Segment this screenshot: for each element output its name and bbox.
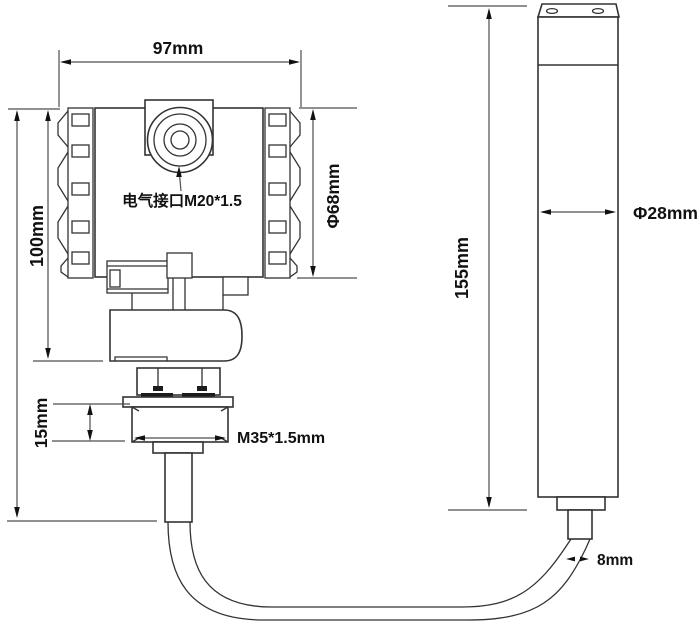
thread-nut xyxy=(132,407,228,442)
probe-top-face xyxy=(538,4,619,17)
dim-housing-diameter: Φ68mm xyxy=(297,108,357,278)
probe-cable-connector xyxy=(568,510,592,539)
flange-plate xyxy=(123,397,233,407)
thread-height-label: 15mm xyxy=(31,398,51,449)
probe-body xyxy=(538,17,618,497)
housing-width-label: 97mm xyxy=(153,38,204,58)
process-connection xyxy=(123,368,233,522)
thread-spec-label: M35*1.5mm xyxy=(237,430,325,447)
oval-boss xyxy=(110,310,242,361)
side-block xyxy=(223,277,248,295)
cable-diameter-label: 8mm xyxy=(597,552,633,569)
lower-plate xyxy=(153,442,203,453)
dim-probe-length: 155mm xyxy=(448,6,527,510)
flange-block xyxy=(137,368,220,395)
dim-housing-width: 97mm xyxy=(59,38,301,107)
probe-diameter-label: Φ28mm xyxy=(633,203,698,223)
probe-length-label: 155mm xyxy=(452,237,472,299)
junction-block xyxy=(167,253,192,278)
electrical-port-label: 电气接口M20*1.5 xyxy=(122,191,242,210)
probe-step xyxy=(557,497,605,510)
housing-diameter-label: Φ68mm xyxy=(323,164,343,229)
dim-thread-height: 15mm xyxy=(31,398,130,449)
technical-drawing-canvas: 97mm 电气接口M20*1.5 xyxy=(0,0,700,629)
probe xyxy=(538,4,619,539)
cable xyxy=(168,522,590,620)
cable-stem xyxy=(165,453,192,522)
level-transmitter-dimension-drawing: 97mm 电气接口M20*1.5 xyxy=(0,0,700,629)
housing-height-label: 100mm xyxy=(27,205,47,267)
